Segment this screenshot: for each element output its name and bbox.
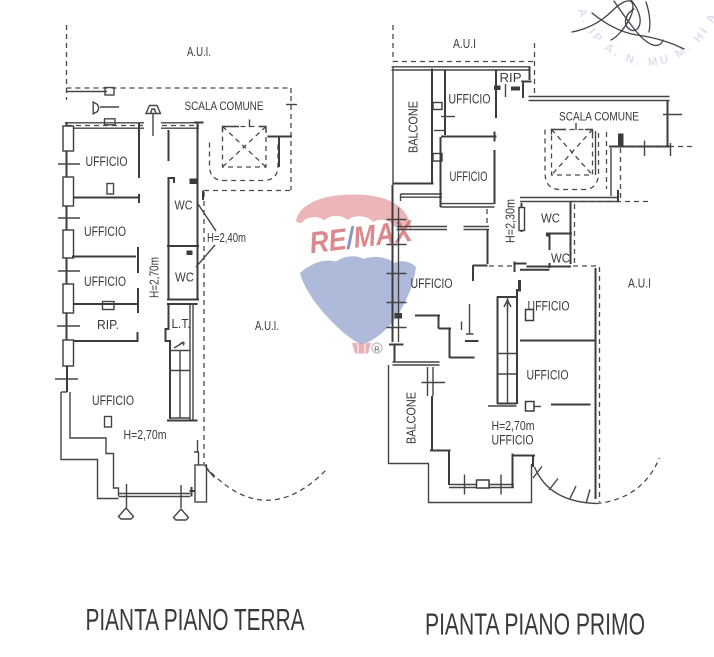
svg-text:A.U.I: A.U.I	[453, 37, 476, 51]
svg-text:UFFICIO: UFFICIO	[450, 169, 488, 184]
svg-text:WC: WC	[175, 270, 194, 285]
svg-text:UFFICIO: UFFICIO	[492, 433, 534, 448]
svg-text:BALCONE: BALCONE	[404, 392, 419, 444]
svg-text:A.U.I.: A.U.I.	[187, 45, 211, 59]
svg-text:H=2,70m: H=2,70m	[492, 418, 535, 433]
svg-text:SCALA COMUNE: SCALA COMUNE	[559, 110, 639, 124]
svg-text:UFFICIO: UFFICIO	[86, 154, 128, 169]
svg-text:H=2,30m: H=2,30m	[503, 199, 518, 243]
svg-text:H=2,40m: H=2,40m	[207, 230, 246, 245]
svg-text:RIP.: RIP.	[500, 70, 524, 85]
svg-text:WC: WC	[541, 211, 560, 226]
svg-text:SCALA COMUNE: SCALA COMUNE	[185, 99, 264, 113]
svg-text:UFFICIO: UFFICIO	[411, 276, 453, 291]
svg-text:BALCONE: BALCONE	[406, 101, 421, 153]
svg-text:UFFICIO: UFFICIO	[84, 224, 126, 239]
svg-text:UFFICIO: UFFICIO	[449, 92, 491, 107]
svg-text:WC: WC	[175, 198, 193, 213]
svg-text:H=2,70m: H=2,70m	[147, 257, 162, 298]
svg-text:UFFICIO: UFFICIO	[92, 393, 134, 408]
svg-text:A.U.I: A.U.I	[628, 277, 651, 291]
svg-text:A.U.I.: A.U.I.	[255, 319, 279, 333]
svg-text:WC: WC	[551, 251, 570, 266]
svg-text:PIANTA PIANO PRIMO: PIANTA PIANO PRIMO	[425, 608, 645, 642]
svg-text:PIANTA PIANO TERRA: PIANTA PIANO TERRA	[86, 603, 305, 637]
svg-text:R: R	[374, 345, 380, 354]
svg-text:RIP.: RIP.	[97, 317, 119, 332]
svg-text:UFFICIO: UFFICIO	[527, 368, 569, 383]
svg-text:H=2,70m: H=2,70m	[124, 427, 167, 442]
svg-text:UFFICIO: UFFICIO	[84, 274, 126, 289]
svg-text:L.T.: L.T.	[172, 316, 191, 331]
